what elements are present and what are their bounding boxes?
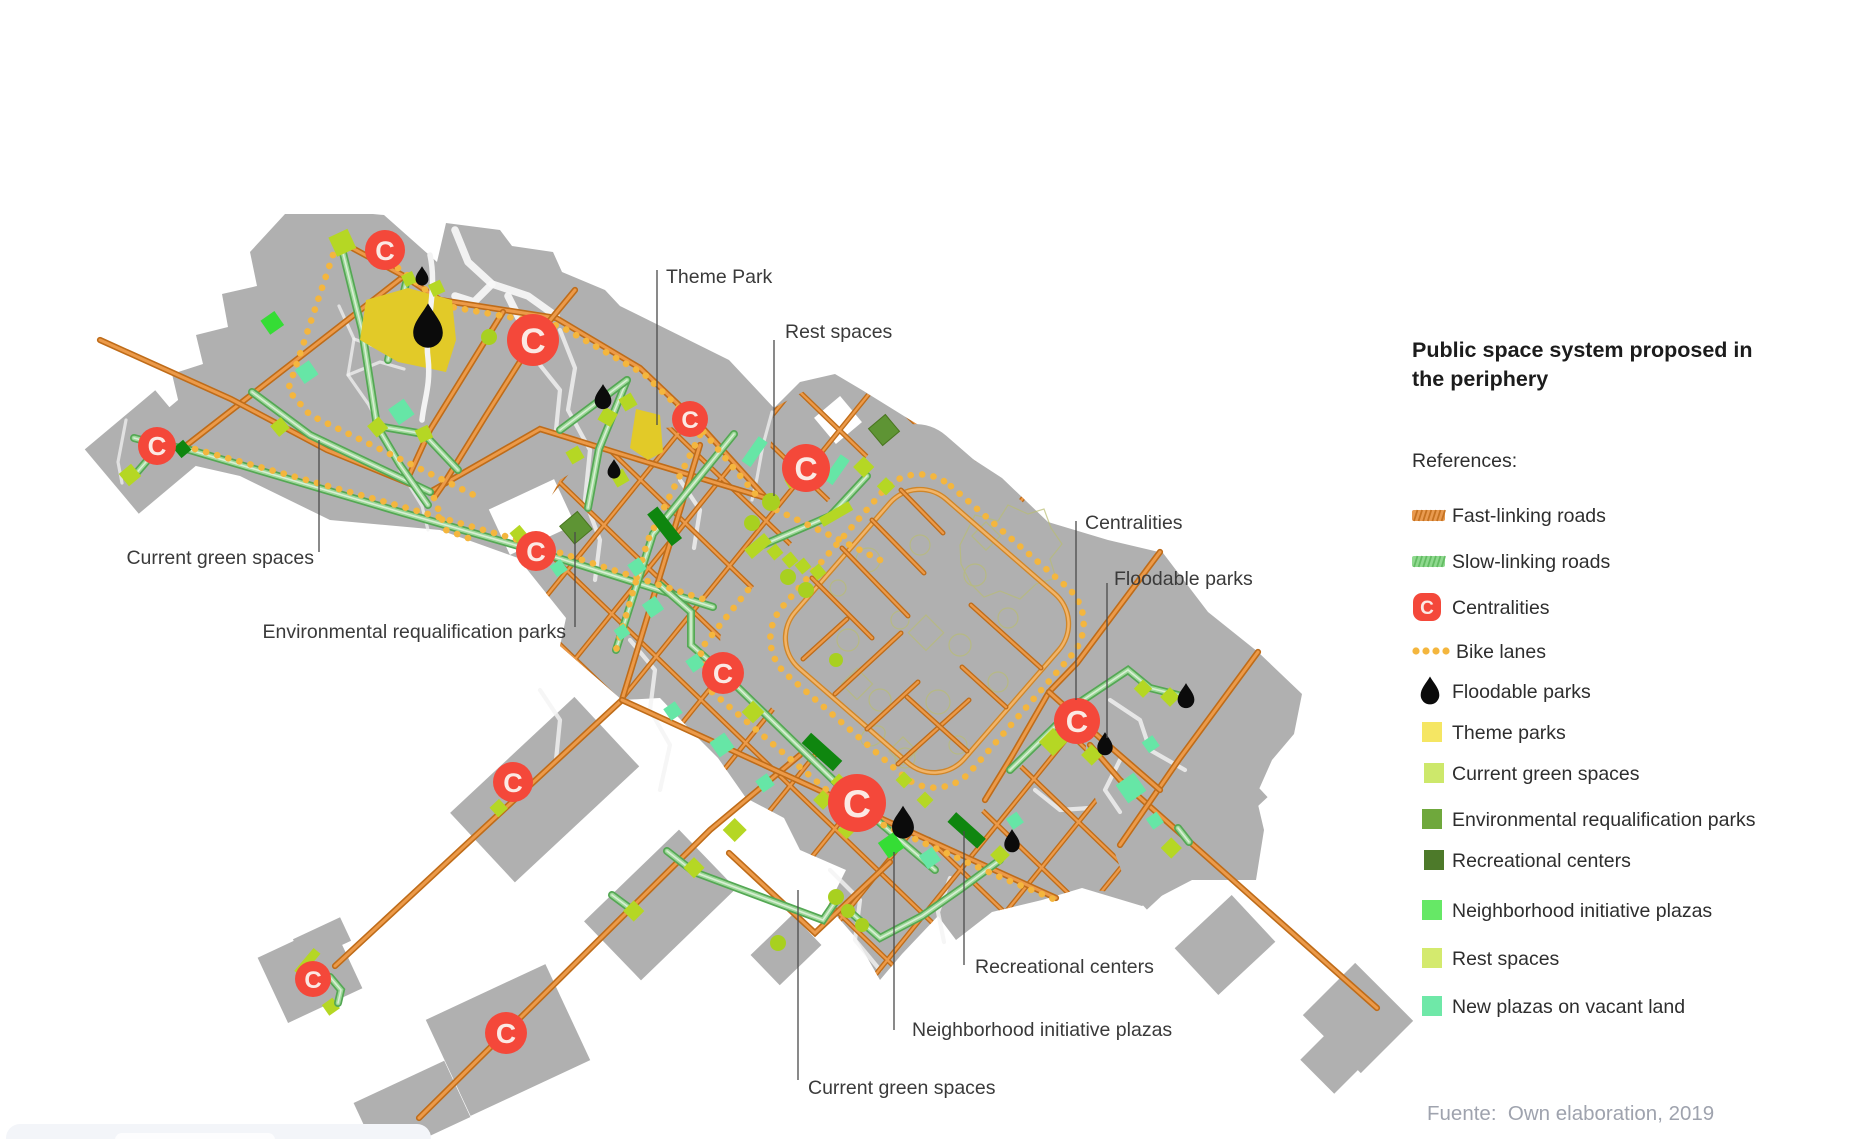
svg-text:Neighborhood initiative plazas: Neighborhood initiative plazas	[1452, 900, 1712, 922]
svg-text:C: C	[1066, 704, 1088, 739]
svg-text:C: C	[713, 658, 733, 689]
svg-text:Rest spaces: Rest spaces	[785, 321, 893, 343]
svg-text:C: C	[794, 451, 817, 487]
svg-text:Centralities: Centralities	[1452, 597, 1550, 619]
svg-text:Current green spaces: Current green spaces	[1452, 763, 1640, 785]
svg-text:Floodable parks: Floodable parks	[1452, 681, 1591, 703]
svg-text:Rest spaces: Rest spaces	[1452, 948, 1560, 970]
svg-text:Recreational centers: Recreational centers	[1452, 850, 1631, 872]
svg-text:New plazas on vacant land: New plazas on vacant land	[1452, 996, 1685, 1018]
svg-text:C: C	[526, 537, 546, 567]
svg-text:Environmental requalification: Environmental requalification parks	[1452, 809, 1756, 831]
svg-text:Public space system proposed i: Public space system proposed in	[1412, 338, 1753, 362]
svg-text:C: C	[503, 768, 523, 798]
svg-text:C: C	[520, 322, 545, 361]
svg-text:Fast-linking roads: Fast-linking roads	[1452, 505, 1606, 527]
svg-text:Environmental requalification: Environmental requalification parks	[263, 621, 567, 643]
svg-text:Theme Park: Theme Park	[666, 266, 772, 288]
svg-text:Theme parks: Theme parks	[1452, 722, 1566, 744]
svg-text:C: C	[304, 967, 321, 994]
svg-text:Recreational centers: Recreational centers	[975, 956, 1154, 978]
svg-text:Current green spaces: Current green spaces	[126, 547, 314, 569]
svg-text:the periphery: the periphery	[1412, 367, 1548, 391]
svg-text:References:: References:	[1412, 450, 1517, 472]
svg-text:Neighborhood initiative plazas: Neighborhood initiative plazas	[912, 1019, 1172, 1041]
svg-text:C: C	[843, 783, 871, 826]
svg-text:C: C	[1420, 598, 1434, 619]
svg-text:Fuente: Own elaboration, 2019: Fuente: Own elaboration, 2019	[1427, 1102, 1714, 1125]
svg-text:Centralities: Centralities	[1085, 512, 1183, 534]
svg-text:Current green spaces: Current green spaces	[808, 1077, 996, 1099]
svg-text:Bike lanes: Bike lanes	[1456, 641, 1546, 663]
svg-text:C: C	[375, 236, 395, 266]
svg-text:Slow-linking roads: Slow-linking roads	[1452, 551, 1610, 573]
svg-text:C: C	[148, 431, 167, 461]
svg-text:C: C	[496, 1018, 516, 1049]
svg-text:C: C	[681, 407, 698, 434]
svg-text:Floodable parks: Floodable parks	[1114, 568, 1253, 590]
